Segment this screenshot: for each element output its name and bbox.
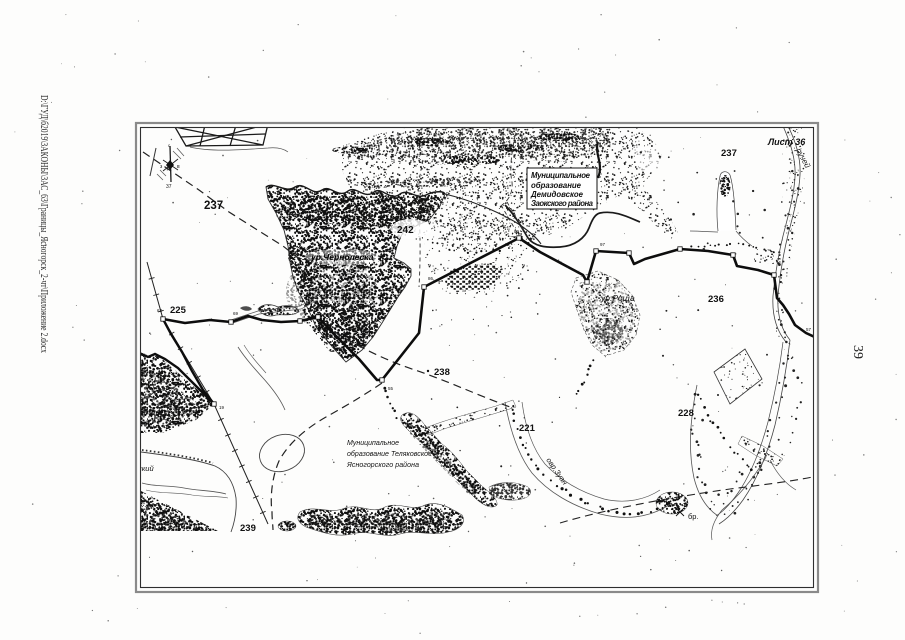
svg-text:Демидовское: Демидовское: [530, 190, 584, 199]
svg-text:55: 55: [388, 386, 394, 391]
svg-text:19: 19: [219, 405, 225, 410]
svg-text:в: в: [177, 164, 180, 170]
svg-text:63: 63: [157, 308, 163, 313]
svg-text:D:\ГУД\б2019\ЗАКОНЫ\ЗАС_63\Гра: D:\ГУД\б2019\ЗАКОНЫ\ЗАС_63\Границы_Ясног…: [38, 95, 49, 353]
svg-text:Роща: Роща: [138, 407, 161, 417]
svg-text:239: 239: [240, 523, 256, 534]
svg-text:Ольховый Лес: Ольховый Лес: [382, 526, 422, 533]
svg-text:Лист 36: Лист 36: [767, 137, 806, 147]
svg-text:221: 221: [519, 423, 536, 434]
svg-text:237: 237: [204, 200, 223, 212]
svg-text:238: 238: [434, 367, 450, 378]
svg-text:Муниципальное: Муниципальное: [531, 171, 591, 180]
svg-text:бр.: бр.: [688, 512, 699, 521]
svg-text:ур.Роща: ур.Роща: [600, 293, 635, 303]
svg-text:ур.Чернолеска: ур.Чернолеска: [310, 252, 374, 262]
svg-text:образование Теляковское: образование Теляковское: [347, 450, 432, 458]
svg-text:образование: образование: [531, 181, 582, 190]
svg-text:86: 86: [428, 276, 434, 281]
svg-text:57: 57: [806, 327, 812, 332]
svg-text:242: 242: [397, 225, 414, 236]
svg-text:Ясногорского района: Ясногорского района: [346, 461, 419, 469]
svg-text:Муниципальное: Муниципальное: [347, 440, 399, 447]
svg-text:39: 39: [850, 345, 865, 359]
svg-text:237: 237: [721, 148, 737, 159]
svg-text:Заокского района: Заокского района: [531, 199, 594, 208]
svg-text:228: 228: [678, 408, 694, 419]
svg-text:225: 225: [170, 305, 187, 316]
svg-text:69: 69: [233, 311, 239, 316]
svg-text:97: 97: [600, 242, 606, 247]
svg-text:37: 37: [166, 184, 172, 190]
svg-text:236: 236: [708, 294, 724, 305]
